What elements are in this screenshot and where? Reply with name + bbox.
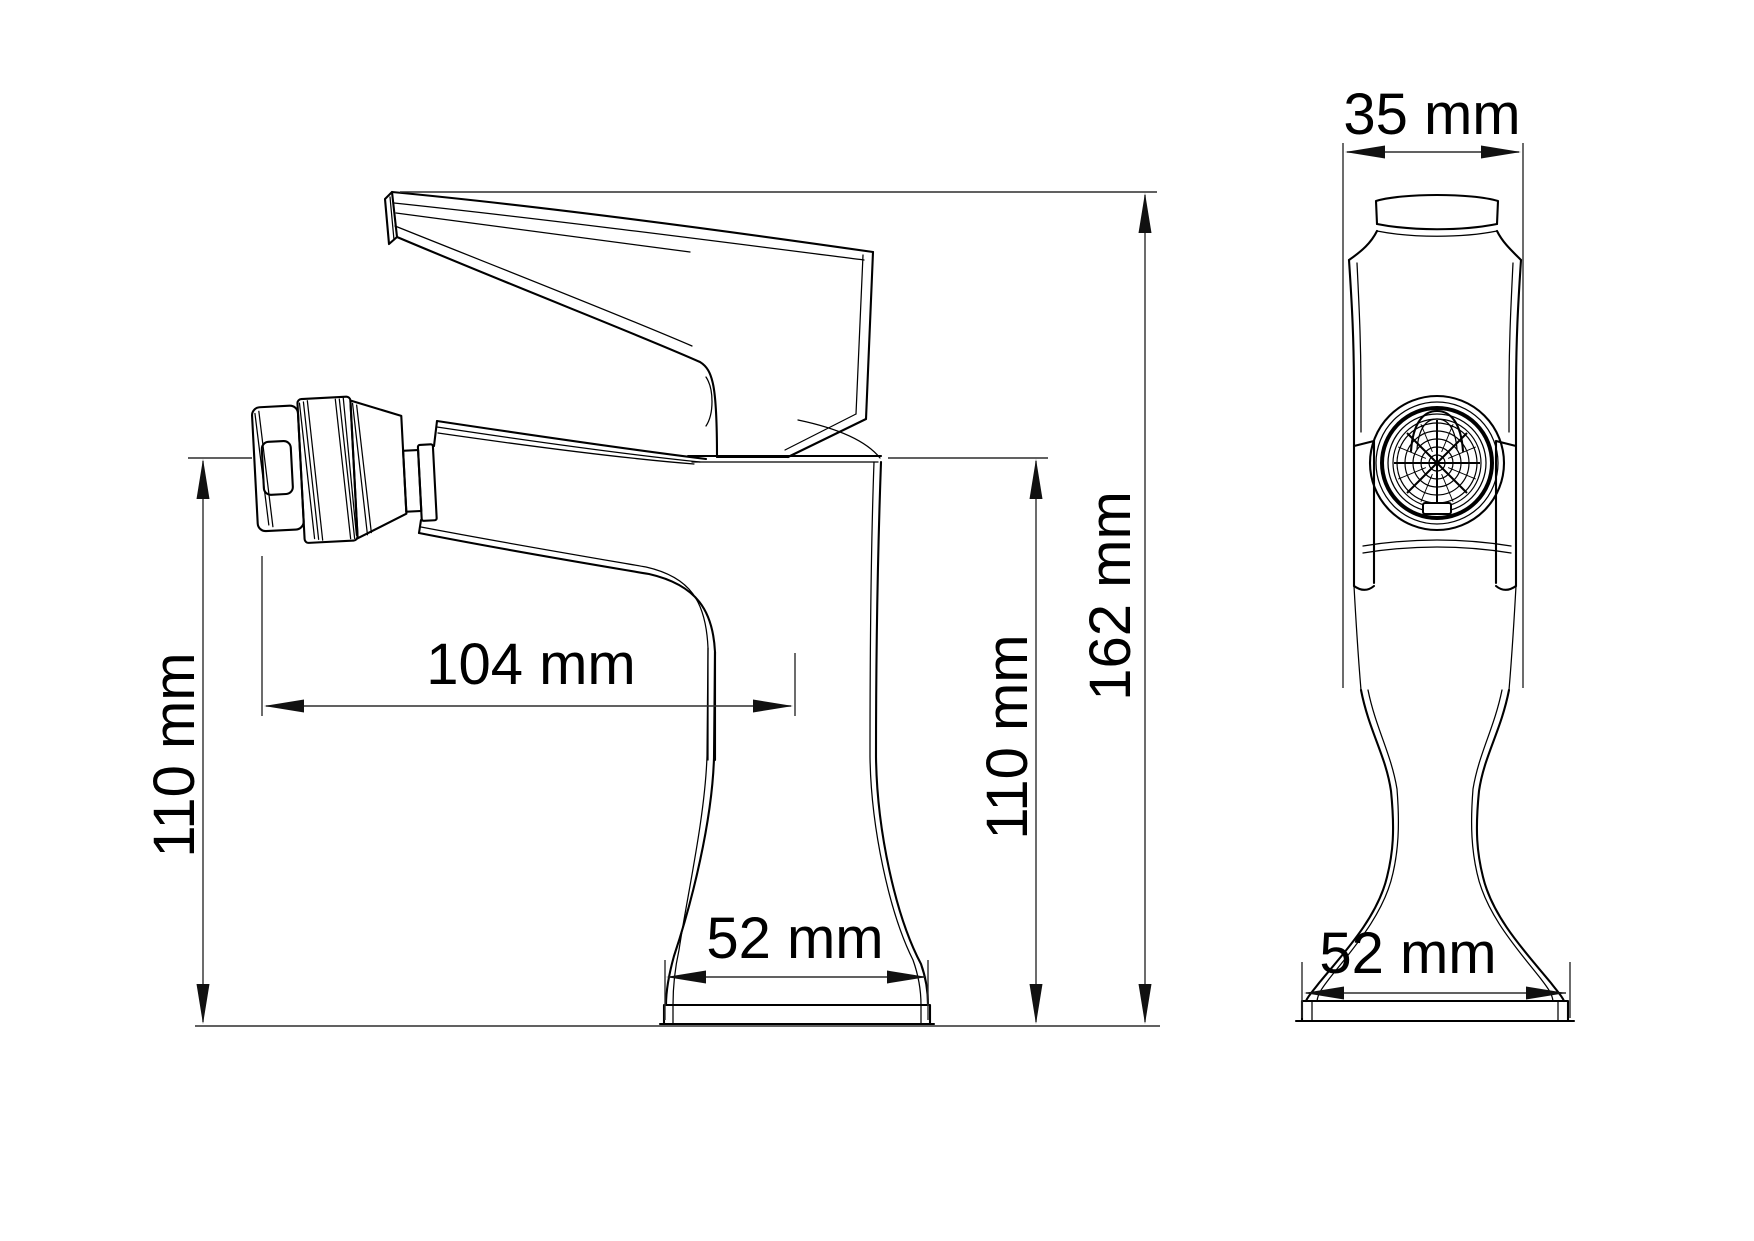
aerator-bottom-tab: [1423, 503, 1451, 514]
dimension-label-height-left: 110 mm: [142, 652, 207, 857]
dimension-label-top-width-front: 35 mm: [1343, 82, 1520, 147]
handle-pin-boss: [706, 377, 712, 426]
dimension-label-height-right: 110 mm: [975, 634, 1040, 839]
front-view-drawing: [1296, 195, 1574, 1021]
dimension-label-base-width-side: 52 mm: [706, 906, 883, 971]
aerator-mesh-grid: [1394, 420, 1480, 506]
dimension-top-width-front: 35 mm: [1343, 82, 1523, 688]
dimension-label-base-width-front: 52 mm: [1319, 921, 1496, 986]
faucet-dimensional-drawing: 110 mm 104 mm 110 mm 162 mm 52 mm: [0, 0, 1754, 1241]
dimension-height-right: 110 mm: [888, 458, 1048, 1024]
dimension-overall-height: 162 mm: [400, 192, 1157, 1024]
dimension-base-width-front: 52 mm: [1302, 921, 1570, 1018]
dimension-base-width-side: 52 mm: [665, 906, 928, 1020]
side-view-drawing: [195, 192, 1160, 1026]
dimension-label-spout-reach: 104 mm: [426, 632, 636, 697]
aerator-front: [1370, 396, 1504, 530]
faucet-handle-side: [385, 192, 880, 458]
faucet-handle-front: [1349, 195, 1521, 260]
body-dome-edge: [798, 420, 880, 458]
faucet-base-side: [660, 1005, 934, 1024]
dimension-label-overall-height: 162 mm: [1078, 491, 1143, 701]
technical-drawing-page: 110 mm 104 mm 110 mm 162 mm 52 mm: [0, 0, 1754, 1241]
body-top-deck: [688, 456, 881, 462]
dimension-height-left: 110 mm: [142, 458, 252, 1024]
faucet-base-front: [1296, 1001, 1574, 1021]
faucet-spout-side: [419, 421, 715, 760]
aerator-side: [251, 392, 437, 545]
